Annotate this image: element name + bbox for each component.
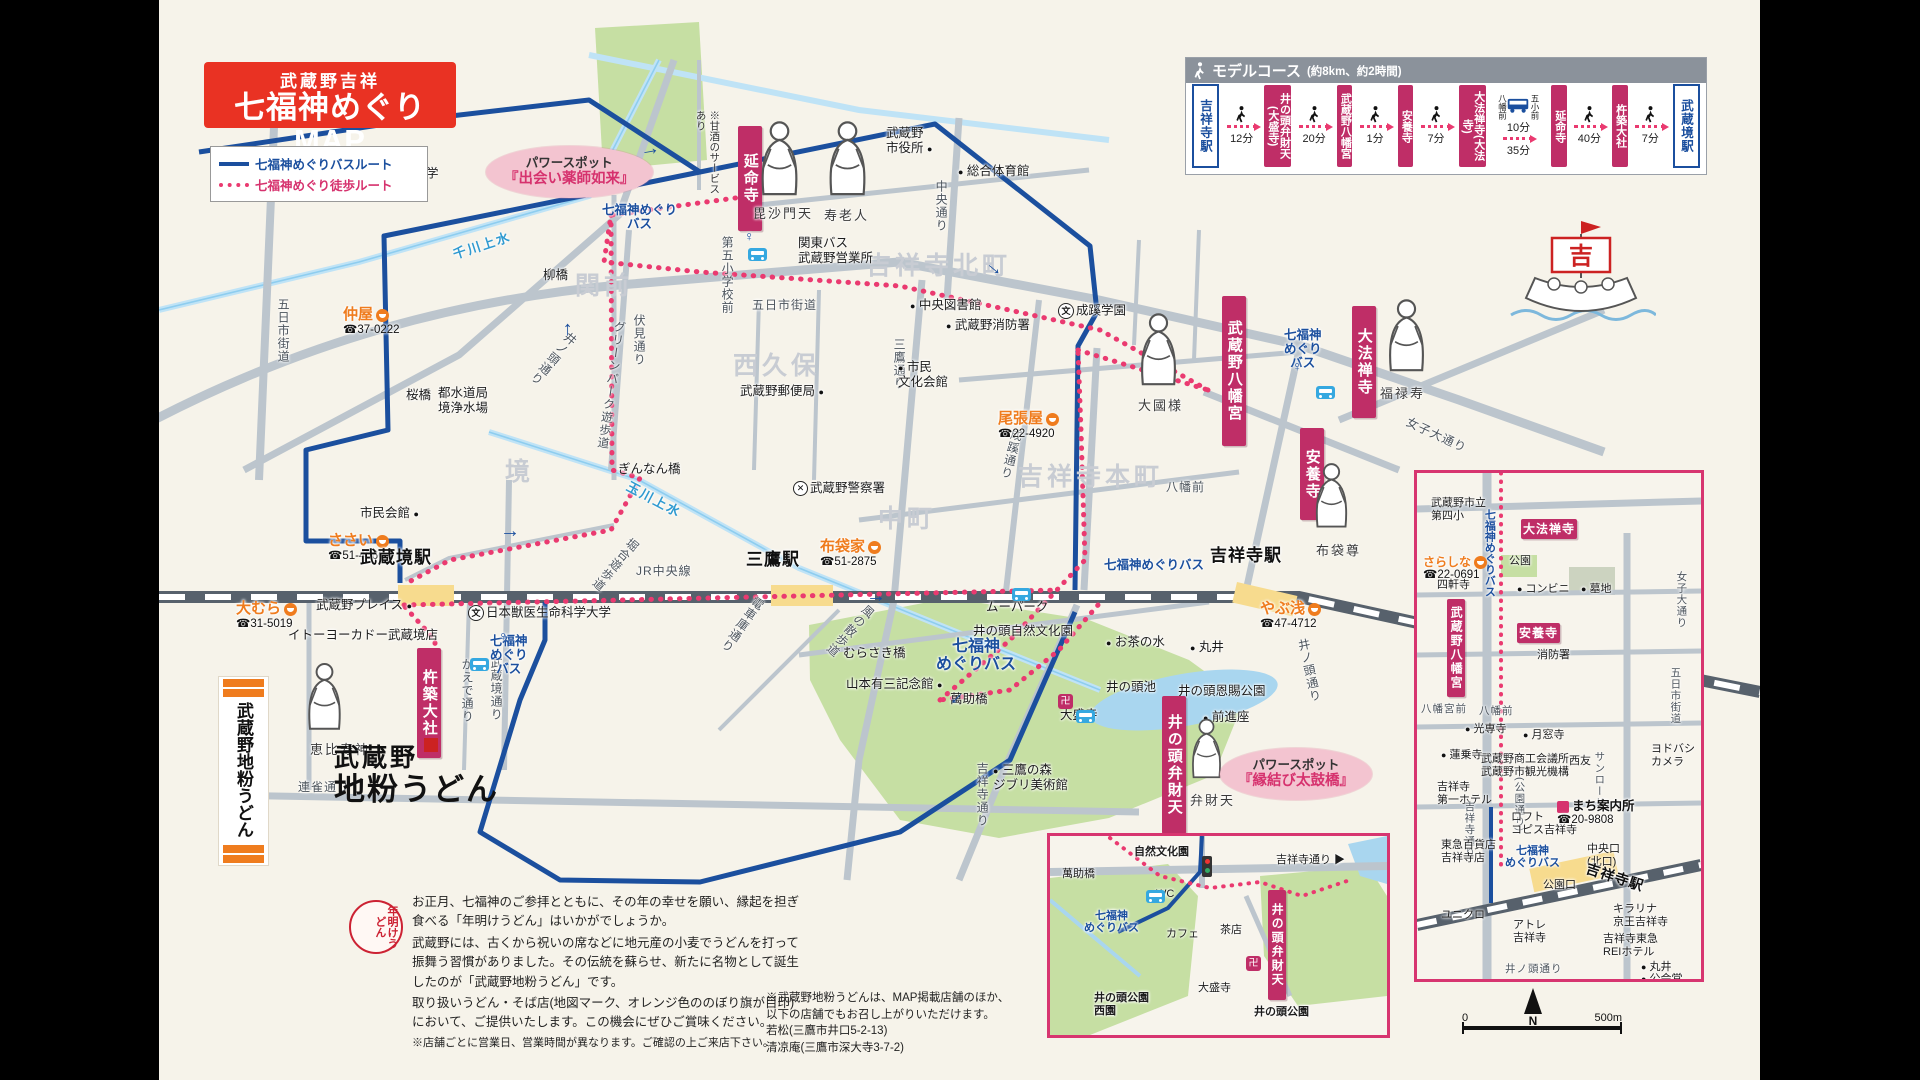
powerspot-label: パワースポット『出会い薬師如来』 (486, 146, 653, 198)
course-walk: 40分 (1571, 106, 1607, 146)
course-temple-安養寺: 安養寺 (1398, 85, 1414, 167)
poi-label: 文成蹊学園 (1058, 303, 1126, 319)
banner-stripe (223, 855, 264, 863)
bus-stop-icon (748, 248, 767, 261)
legend-bus-route: 七福神めぐりバスルート (219, 154, 419, 173)
stop-label: ♀ (1292, 358, 1303, 375)
road-label: 女子大通り (1675, 571, 1687, 629)
model-course-note: (約8km、約2時間) (1307, 63, 1402, 79)
poi-label: ● 公会堂 (1641, 973, 1683, 982)
poi-label: 大盛寺 (1198, 982, 1231, 995)
bus-label: 七福神めぐりバス (936, 638, 1016, 674)
footnote-line1: ※武蔵野地粉うどんは、MAP掲載店舗のほか、 (766, 990, 1009, 1007)
stop-label: ♀ (744, 228, 755, 245)
bus-label: 七福神めぐりバス (1483, 509, 1495, 597)
udon-paragraph-3: 取り扱いうどん・そば店(地図マーク、オレンジ色ののぼり旗が目印)において、ご提供… (412, 994, 804, 1033)
poi-label: ● コンビニ (1517, 583, 1570, 596)
banner-stripe (223, 679, 264, 687)
model-course-row: 吉祥寺駅12分井の頭弁財天(大盛寺)20分武蔵野八幡宮1分安養寺7分大法禅寺(大… (1186, 83, 1706, 169)
bus-route-swatch (219, 162, 249, 166)
legend-walk-route: 七福神めぐり徒歩ルート (219, 175, 419, 194)
shop-label: 大むら☎31-5019 (236, 600, 297, 631)
course-walk: 7分 (1632, 106, 1668, 146)
udon-nobori-banner: 武蔵野地粉うどん (218, 676, 269, 866)
traffic-signal-icon (1202, 856, 1212, 877)
temple-label: 大法禅寺 (1352, 306, 1376, 418)
poi-label: ● 総合体育館 (958, 164, 1029, 179)
poi-label: 山本有三記念館 ● (846, 677, 942, 692)
powerspot-label: パワースポット『縁結び太鼓橋』 (1220, 748, 1372, 800)
poi-label: 武蔵野郵便局 ● (740, 384, 824, 399)
poi-label: ムーパーク (986, 600, 1048, 615)
road-label: 中央通り (934, 180, 948, 232)
kichijoji-detail-inset: 武蔵野市立第四小七福神めぐりバス大法禅寺公園さらしな☎22-0691● コンビニ… (1414, 470, 1704, 982)
road-label: 五日市街道 (752, 298, 817, 312)
udon-paragraph-2: 武蔵野には、古くから祝いの席などに地元産の小麦でうどんを打って振舞う習慣がありま… (412, 934, 804, 992)
treasure-ship-illustration: 吉 (1506, 218, 1656, 333)
road-label: 八幡宮前 (1421, 703, 1467, 715)
deity-label: 毘沙門天 (753, 206, 813, 221)
poi-label: 桜橋 (406, 388, 431, 403)
map-poster: 関前西久保境中町吉祥寺北町吉祥寺本町五日市街道五日市街道井ノ頭通り伏見通りグリー… (0, 0, 1920, 1080)
logo-seal (424, 738, 438, 752)
poi-label: むらさき橋 (843, 646, 906, 661)
road-label: 堀合遊歩道 (589, 535, 642, 594)
route-direction-arrow: → (943, 684, 974, 715)
scale-end: 500m (1594, 1012, 1622, 1024)
inset-bottom-labels: 自然文化園吉祥寺通り ▶萬助橋WC七福神めぐりバスカフェ茶店井の頭弁財天大盛寺井… (1050, 836, 1387, 1035)
course-temple-延命寺: 延命寺 (1551, 85, 1567, 167)
poi-label: ● 墓地 (1581, 583, 1612, 596)
water-label: 玉川上水 (624, 479, 684, 521)
deity-label: 寿老人 (824, 208, 869, 223)
toshiake-udon-seal: 年明けうどん (349, 900, 403, 954)
walk-route-label: 七福神めぐり徒歩ルート (255, 175, 393, 194)
map-title-line1: 武蔵野吉祥 (204, 67, 456, 92)
poi-label: 武蔵野市立第四小 (1431, 497, 1486, 523)
udon-paragraph-1: お正月、七福神のご参拝とともに、その年の幸せを願い、縁起を担ぎ食べる「年明けうど… (412, 893, 804, 932)
poi-label: 市民会館 ● (360, 506, 419, 521)
udon-logo-line1: 武蔵野 (334, 738, 499, 774)
deity-illustration (818, 118, 877, 205)
temple-label: 武蔵野八幡宮 (1447, 599, 1465, 697)
poi-label: ● 丸井 (1190, 640, 1224, 655)
poi-label: 都水道局境浄水場 (438, 386, 488, 416)
poi-label: 西友 (1569, 755, 1591, 768)
shop-label: 仲屋☎37-0222 (343, 306, 400, 337)
temple-stop-icon (1058, 694, 1073, 709)
road-label: 井ノ頭通り (1505, 963, 1563, 975)
banner-stripe (223, 689, 264, 697)
temple-label: 大法禅寺 (1521, 519, 1577, 539)
note-label: ※甘酒のサービスあり (693, 110, 720, 194)
road-label: 吉祥寺通り (975, 762, 989, 827)
course-temple-大法禅寺(大法寺): 大法禅寺(大法寺) (1459, 85, 1486, 167)
poi-label: 関東バス武蔵野営業所 (798, 236, 873, 266)
poi-label: ● 中央図書館 (910, 298, 981, 313)
shop-label: やぶ浅☎47-4712 (1260, 600, 1321, 631)
poi-label: 井の頭公園西園 (1094, 992, 1149, 1018)
area-label: 関前 (575, 272, 633, 302)
poi-label: ユニクロ (1441, 909, 1485, 922)
area-label: 中町 (878, 505, 936, 535)
course-bus: 八幡前五小前10分35分 (1490, 94, 1546, 159)
poi-label: ぎんなん橋 (618, 462, 681, 477)
route-direction-arrow: → (500, 520, 520, 544)
model-course-panel: モデルコース (約8km、約2時間) 吉祥寺駅12分井の頭弁財天(大盛寺)20分… (1185, 57, 1707, 175)
road-label: グリーンパーク遊歩道 (595, 320, 627, 451)
temple-label: 武蔵野八幡宮 (1222, 296, 1246, 446)
road-label: 井ノ頭通り (1295, 637, 1322, 704)
road-label: 電車庫通り (718, 594, 767, 655)
poi-label: 井の頭池 (1106, 680, 1156, 695)
poi-label: 自然文化園 (1134, 846, 1189, 859)
poi-label: ● 武蔵野消防署 (946, 318, 1030, 333)
poi-label: カフェ (1166, 928, 1199, 941)
bus-stop-icon (1316, 386, 1335, 399)
stop-label: ♀ (498, 628, 509, 645)
udon-logo: 武蔵野 地粉うどん (334, 738, 499, 805)
deity-illustration (1378, 296, 1435, 381)
road-label: 女子大通り (1404, 415, 1469, 455)
poi-label: 武蔵野商工会議所武蔵野市観光機構 (1481, 753, 1569, 779)
poi-label: 吉祥寺東急REIホテル (1603, 933, 1658, 959)
inset-right-labels: 武蔵野市立第四小七福神めぐりバス大法禅寺公園さらしな☎22-0691● コンビニ… (1417, 473, 1701, 979)
area-label: 西久保 (733, 352, 820, 382)
area-label: 吉祥寺本町 (1018, 463, 1163, 493)
temple-stop-icon (1246, 956, 1261, 971)
bus-stop-icon (1076, 710, 1095, 723)
poi-label: ● 市民文化会館 (898, 360, 948, 390)
poi-label: 四軒寺 (1437, 579, 1470, 592)
road-label: 第五小学校前 (720, 236, 734, 314)
ship-flag-char: 吉 (1569, 243, 1593, 270)
poi-label: 柳橋 (543, 268, 568, 283)
deity-label: 弁財天 (1190, 793, 1235, 808)
bus-stop-icon (1012, 588, 1031, 601)
temple-label: 井の頭弁財天 (1268, 890, 1286, 1000)
deity-illustration (750, 118, 809, 205)
banner-stripe (223, 845, 264, 853)
scale-bar: 0 500m (1462, 1012, 1622, 1030)
poi-label: 公園 (1509, 555, 1531, 568)
bus-stop-icon (1146, 890, 1165, 903)
deity-label: 大國様 (1138, 398, 1183, 413)
deity-illustration (1130, 310, 1187, 395)
bus-label: 七福神めぐりバス (1084, 910, 1139, 935)
poi-label: アトレ吉祥寺 (1513, 919, 1546, 945)
bus-label: 七福神めぐりバス (602, 203, 677, 231)
poi-label: 武蔵野プレイス ● (316, 598, 412, 613)
poi-label: 公園口 (1543, 879, 1576, 892)
course-temple-杵築大社: 杵築大社 (1612, 85, 1628, 167)
route-direction-arrow: → (554, 320, 578, 340)
banner-text: 武蔵野地粉うどん (231, 701, 256, 839)
poi-label: 吉祥寺通り ▶ (1276, 854, 1345, 867)
temple-label: 安養寺 (1517, 623, 1560, 643)
course-walk: 1分 (1357, 106, 1393, 146)
road-label: 五日市街道 (276, 298, 290, 363)
inokashira-detail-inset: 自然文化園吉祥寺通り ▶萬助橋WC七福神めぐりバスカフェ茶店井の頭弁財天大盛寺井… (1047, 833, 1390, 1038)
poi-label: ✕武蔵野警察署 (793, 481, 885, 496)
compass-needle (1524, 988, 1542, 1014)
route-direction-arrow: → (638, 136, 662, 163)
model-course-header: モデルコース (約8km、約2時間) (1186, 58, 1706, 83)
water-label: 千川上水 (451, 229, 513, 262)
poi-label: ヨドバシカメラ (1651, 743, 1695, 769)
footnote-shop1: 若松(三鷹市井口5-2-13) (766, 1023, 1009, 1040)
course-station-吉祥寺駅: 吉祥寺駅 (1192, 84, 1219, 168)
area-label: 境 (505, 458, 534, 488)
deity-illustration (1306, 460, 1357, 537)
course-temple-井の頭弁財天(大盛寺): 井の頭弁財天(大盛寺) (1264, 85, 1291, 167)
route-legend: 七福神めぐりバスルート 七福神めぐり徒歩ルート (210, 146, 428, 202)
poi-label: ● 月窓寺 (1523, 729, 1565, 742)
poi-label: 井の頭公園 (1254, 1006, 1309, 1019)
road-label: 伏見通り (632, 314, 646, 366)
deity-label: 布袋尊 (1316, 543, 1361, 558)
poi-label: 文日本獣医生命科学大学 (468, 605, 611, 621)
poi-label: イトーヨーカドー武蔵境店 (288, 628, 438, 643)
poi-label: 東急百貨店吉祥寺店 (1441, 839, 1496, 865)
poi-label: 井の頭恩賜公園 (1178, 684, 1266, 699)
bus-label: 七福神めぐりバス (1505, 845, 1560, 870)
walk-route-swatch (219, 183, 249, 187)
course-station-武蔵境駅: 武蔵境駅 (1673, 84, 1700, 168)
footnote-shop2: 清凉庵(三鷹市深大寺3-7-2) (766, 1040, 1009, 1057)
course-walk: 12分 (1224, 106, 1260, 146)
course-walk: 7分 (1418, 106, 1454, 146)
station-label: 吉祥寺駅 (1210, 546, 1282, 566)
poi-label: ● お茶の水 (1106, 635, 1165, 650)
poi-label: 消防署 (1537, 649, 1570, 662)
walker-icon (1194, 62, 1206, 80)
udon-shops-footnote: ※武蔵野地粉うどんは、MAP掲載店舗のほか、 以下の店舗でもお召し上がりいただけ… (766, 990, 1009, 1057)
route-direction-arrow: → (866, 585, 886, 609)
poi-label: ● 三鷹の森ジブリ美術館 (993, 763, 1068, 793)
info-label: まち案内所☎20-9808 (1557, 799, 1635, 827)
deity-label: 福禄寿 (1380, 386, 1425, 401)
shop-label: 尾張屋☎22-4920 (998, 410, 1059, 441)
road-label: 八幡前 (1479, 705, 1514, 717)
poi-label: ● 光専寺 (1465, 723, 1507, 736)
poi-label: 茶店 (1220, 924, 1242, 937)
poi-label: 井の頭自然文化園 (973, 624, 1073, 639)
udon-logo-line2: 地粉うどん (334, 774, 499, 805)
poi-label: ● 蓮乗寺 (1441, 749, 1483, 762)
footnote-line2: 以下の店舗でもお召し上がりいただけます。 (766, 1007, 1009, 1024)
road-label: 五日市街道 (1669, 667, 1681, 725)
map-title: 武蔵野吉祥 七福神めぐりMAP (204, 62, 456, 128)
udon-paragraph-4: ※店舗ごとに営業日、営業時間が異なります。ご確認の上ご来店下さい。 (412, 1035, 804, 1052)
station-label: 武蔵境駅 (360, 548, 432, 568)
road-label: JR中央線 (636, 564, 692, 578)
bus-stop-icon (470, 658, 489, 671)
bus-label: 七福神めぐりバス (1104, 558, 1204, 572)
poi-label: キラリナ京王吉祥寺 (1613, 903, 1668, 929)
model-course-title: モデルコース (1212, 60, 1301, 81)
course-temple-武蔵野八幡宮: 武蔵野八幡宮 (1337, 85, 1353, 167)
bus-route-label: 七福神めぐりバスルート (255, 154, 393, 173)
course-walk: 20分 (1296, 106, 1332, 146)
station-label: 三鷹駅 (746, 550, 800, 570)
shop-label: 布袋家☎51-2875 (820, 538, 881, 569)
scale-bar-line (1462, 1026, 1622, 1030)
road-label: 八幡前 (1166, 480, 1205, 494)
poi-label: 武蔵野市役所 ● (886, 126, 932, 156)
udon-description: お正月、七福神のご参拝とともに、その年の幸せを願い、縁起を担ぎ食べる「年明けうど… (412, 893, 804, 1054)
poi-label: 萬助橋 (1062, 868, 1095, 881)
deity-illustration (298, 660, 351, 739)
